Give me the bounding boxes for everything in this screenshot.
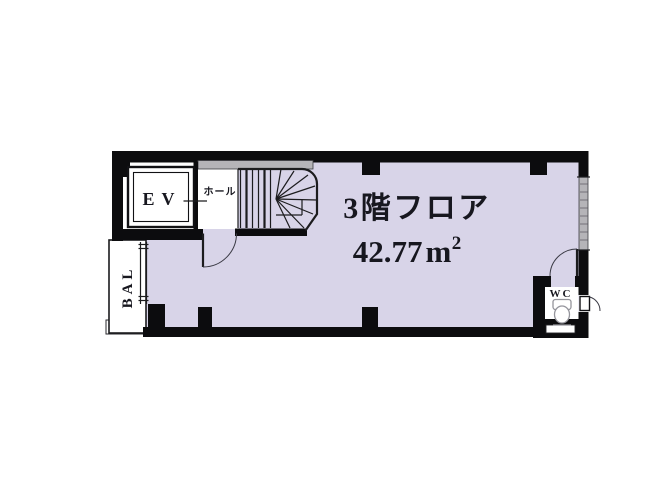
window-right-glass	[579, 177, 588, 250]
wc-wall-top-left	[533, 276, 551, 287]
wall-stair-bottom	[235, 229, 307, 237]
hall-label: ホール	[204, 186, 237, 198]
window-right	[577, 177, 590, 250]
wall-right-middle	[579, 250, 589, 295]
balcony-label: BAL	[120, 266, 136, 309]
exterior-door-leaf	[580, 297, 590, 311]
wall-right-upper	[579, 151, 589, 178]
pillar-bottom-2	[198, 307, 212, 328]
wc-wall-top-jamb	[575, 276, 580, 287]
wc-threshold	[546, 325, 575, 333]
wall-left	[112, 151, 123, 241]
floor-plan-page: BAL EV	[0, 0, 661, 480]
area-value: 42.77	[353, 234, 423, 269]
area-unit: m	[425, 234, 451, 269]
elevator-room: EV	[128, 162, 207, 229]
wc-label: WC	[550, 288, 573, 300]
wall-elevator-bottom	[112, 229, 203, 240]
hall: ホール	[204, 186, 237, 198]
pillar-bottom-1	[148, 304, 165, 328]
pillar-top-1	[362, 162, 380, 175]
elevator-label: EV	[142, 189, 181, 209]
pillar-top-2	[530, 162, 547, 175]
window-top-band	[198, 161, 313, 170]
area-exponent: 2	[452, 233, 462, 254]
floor-plan-drawing: BAL EV	[0, 0, 661, 480]
pillar-bottom-3	[362, 307, 378, 328]
floor-title: 3階フロア	[343, 192, 491, 225]
floor-area: 42.77m2	[353, 233, 462, 269]
wall-top	[112, 151, 588, 163]
wall-bottom	[143, 327, 589, 337]
